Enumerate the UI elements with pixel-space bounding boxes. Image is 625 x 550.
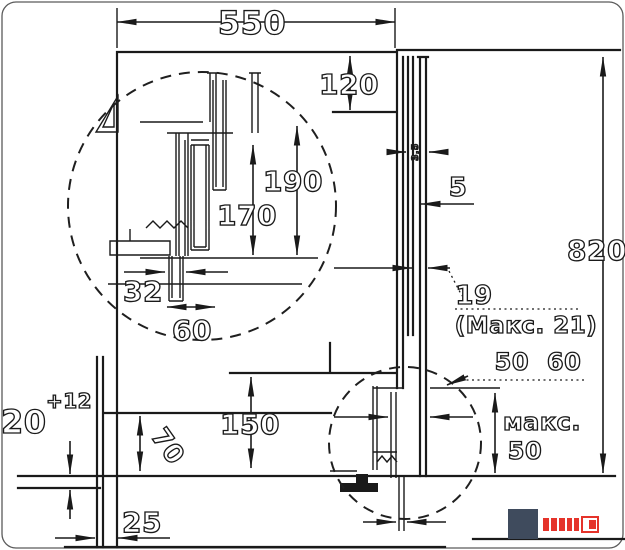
- label-maks: макс.: [503, 408, 581, 436]
- logo-letter: [551, 518, 557, 531]
- label-25: 25: [122, 506, 162, 539]
- bracket-lines: [330, 386, 500, 531]
- dimension-labels: 550 120 190 170 32 60 5 820 19 (Макс. 21…: [1, 4, 625, 539]
- leader-50-60: [447, 376, 468, 385]
- foot-pad: [340, 483, 378, 492]
- label-60: 60: [172, 314, 212, 347]
- logo-square: [508, 509, 538, 539]
- brand-logo: [508, 509, 598, 539]
- label-820: 820: [567, 234, 625, 267]
- bracket-detail: [330, 386, 500, 531]
- logo-letter: [543, 518, 549, 531]
- label-120: 120: [319, 68, 379, 101]
- logo-letter: [559, 518, 565, 531]
- diagram-canvas: 550 120 190 170 32 60 5 820 19 (Макс. 21…: [0, 0, 625, 550]
- page-border: [2, 2, 623, 548]
- label-3-5: 3,5: [411, 143, 421, 160]
- label-max-21: (Макс. 21): [455, 313, 597, 339]
- appliance-body: [97, 50, 620, 547]
- detail-circle-small: [329, 367, 481, 519]
- logo-letter: [574, 518, 579, 531]
- worktop-edge-detail: [96, 96, 118, 132]
- label-5: 5: [449, 173, 468, 203]
- installation-diagram: 550 120 190 170 32 60 5 820 19 (Макс. 21…: [0, 0, 625, 550]
- label-170: 170: [217, 199, 277, 232]
- logo-letter: [567, 518, 572, 531]
- machine-outline: [18, 50, 625, 547]
- label-plus-12: +12: [46, 389, 92, 413]
- label-32: 32: [123, 275, 163, 308]
- logo-wordmark: [543, 517, 598, 532]
- label-150: 150: [220, 408, 280, 441]
- label-19: 19: [455, 281, 492, 311]
- label-550: 550: [218, 4, 286, 42]
- label-50-60: 50 60: [495, 348, 582, 376]
- label-190: 190: [263, 165, 323, 198]
- foot-stem: [356, 474, 368, 483]
- label-70: 70: [144, 423, 190, 471]
- logo-outline-mark: [589, 520, 596, 529]
- label-maks-50: 50: [508, 437, 542, 465]
- label-20: 20: [1, 403, 47, 441]
